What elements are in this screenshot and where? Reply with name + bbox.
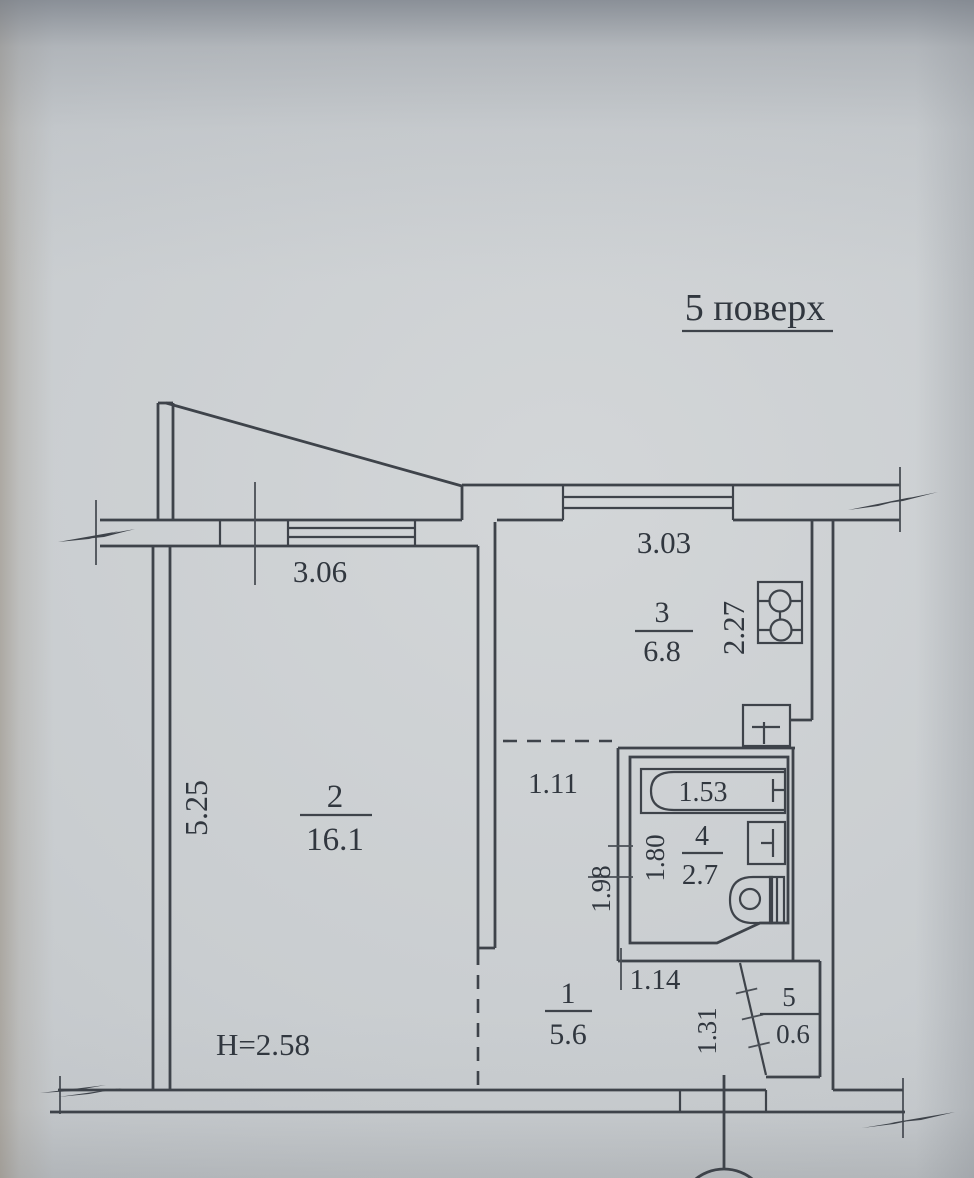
- wall-break-icon-bottom-left: [40, 1076, 122, 1114]
- kitchen-window: [563, 485, 733, 520]
- svg-text:1: 1: [561, 977, 576, 1010]
- floor-plan-photo: 5 поверх: [0, 0, 974, 1178]
- kitchen-top-wall: [462, 485, 900, 520]
- toilet-icon: [730, 877, 784, 923]
- dim-kitchen-window: 3.03: [637, 525, 691, 560]
- dim-corridor-depth: 1.98: [586, 865, 616, 912]
- closet-door-line: [736, 963, 770, 1075]
- dim-kitchen-depth: 2.27: [716, 601, 751, 655]
- svg-text:4: 4: [695, 821, 709, 852]
- svg-text:0.6: 0.6: [776, 1019, 810, 1049]
- wall-break-icon-top-right: [848, 467, 938, 532]
- svg-text:6.8: 6.8: [643, 635, 681, 668]
- wall-break-icon-bottom-right: [862, 1078, 955, 1138]
- svg-text:2: 2: [327, 779, 344, 815]
- left-outer-wall: [153, 546, 170, 1090]
- entrance-swing-circle: [679, 1169, 769, 1178]
- sink-icon: [748, 822, 785, 864]
- svg-text:16.1: 16.1: [306, 822, 364, 858]
- dim-corridor-width: 1.11: [528, 768, 578, 800]
- room2-partition-wall: [478, 522, 495, 1086]
- balcony-outline: [158, 403, 462, 520]
- dim-room2-window: 3.06: [293, 554, 347, 589]
- ceiling-height-label: H=2.58: [216, 1027, 310, 1062]
- svg-text:5: 5: [782, 982, 796, 1012]
- wall-break-icon-top-left: [58, 500, 135, 565]
- svg-text:3: 3: [655, 596, 670, 629]
- dim-hall-width: 1.14: [630, 964, 681, 996]
- dim-closet-depth: 1.31: [692, 1007, 722, 1054]
- svg-text:5.6: 5.6: [549, 1018, 587, 1051]
- floor-title: 5 поверх: [685, 287, 825, 329]
- vent-duct-icon: [743, 705, 790, 746]
- dim-bathroom-depth: 1.80: [640, 834, 670, 881]
- dim-bathtub-length: 1.53: [679, 777, 728, 808]
- floor-plan-drawing: 5 поверх: [0, 0, 974, 1178]
- room-label-3: 3 6.8: [635, 596, 693, 668]
- stove-icon: [758, 582, 802, 643]
- right-outer-wall: [790, 520, 903, 1090]
- balcony-roof-diagonal: [166, 403, 462, 486]
- room2-window: [288, 520, 415, 546]
- bathtub-faucet-icon: [773, 779, 784, 802]
- room-label-2: 2 16.1: [300, 779, 372, 858]
- svg-text:2.7: 2.7: [682, 859, 718, 891]
- bottom-outer-wall: [50, 1090, 905, 1112]
- room-label-5: 5 0.6: [760, 982, 820, 1049]
- room-label-4: 4 2.7: [682, 821, 723, 891]
- dim-room2-depth: 5.25: [178, 780, 214, 836]
- room-label-1: 1 5.6: [545, 977, 592, 1051]
